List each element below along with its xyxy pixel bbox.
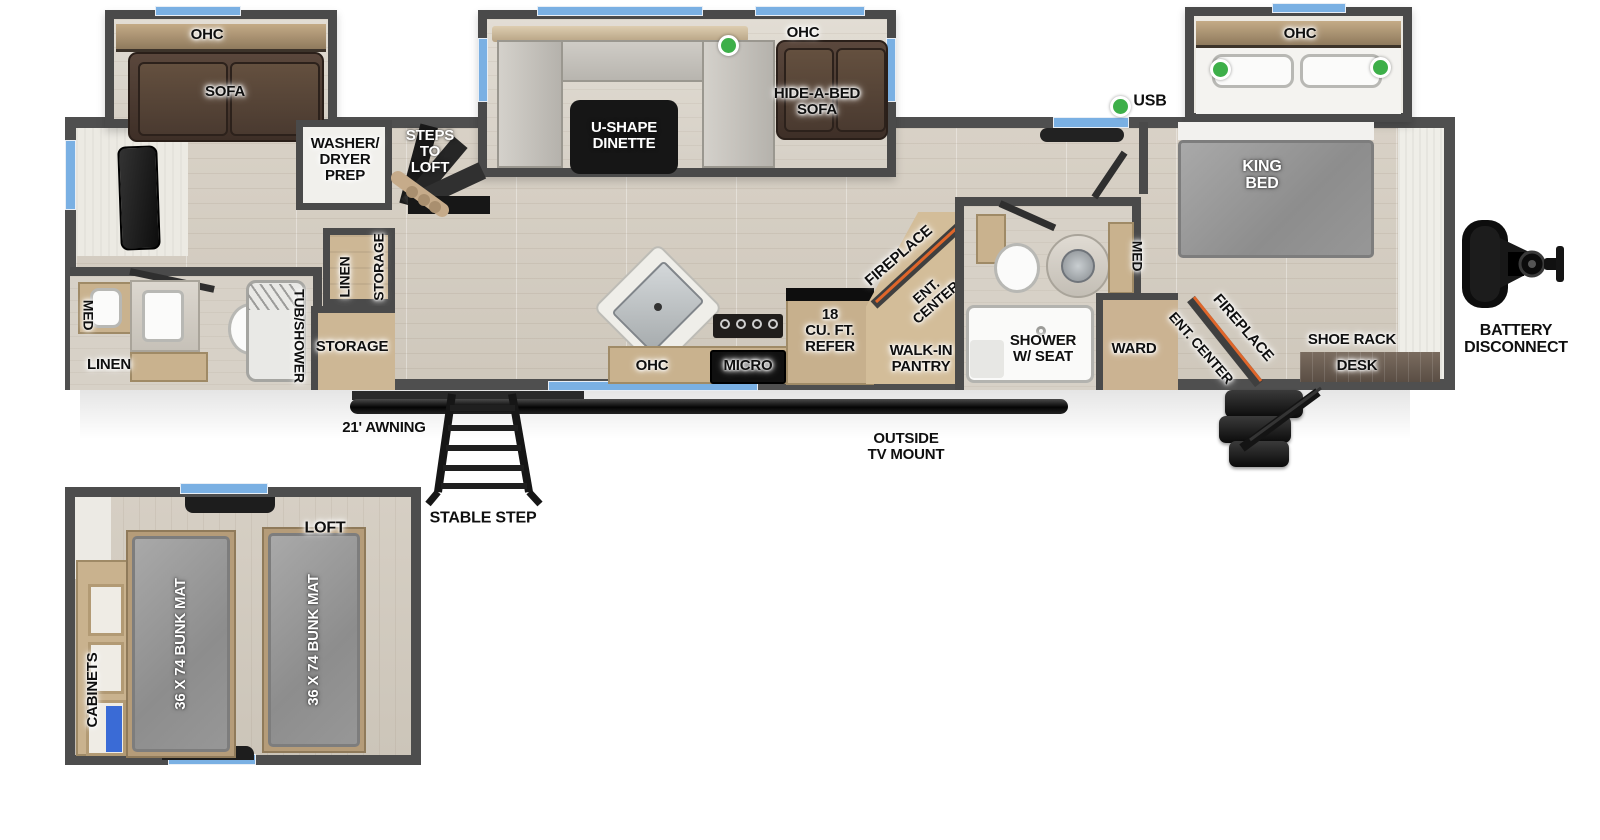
window — [478, 38, 488, 102]
shower-label: SHOWER W/ SEAT — [1010, 333, 1076, 365]
window — [1272, 3, 1346, 13]
refrigerator-top — [786, 288, 874, 301]
burner — [752, 319, 762, 329]
faucet — [654, 303, 662, 311]
usb-dot — [1370, 57, 1391, 78]
usb-label: USB — [1133, 94, 1166, 111]
micro-label: MICRO — [724, 358, 773, 374]
window — [65, 140, 76, 210]
desk-label: DESK — [1337, 358, 1378, 374]
dinette-slide-ohc-label: OHC — [787, 25, 820, 41]
king-bed-sheet — [1178, 122, 1374, 140]
stable-step — [420, 388, 550, 508]
washer-dryer-label: WASHER/ DRYER PREP — [311, 136, 380, 184]
loft-cabinets-label: CABINETS — [85, 652, 101, 727]
vanity-drawers — [130, 352, 208, 382]
king-slide-ohc-label: OHC — [1284, 26, 1317, 42]
mid-med-label: MED — [1130, 241, 1145, 272]
linen-closet-label: LINEN — [338, 256, 353, 297]
round-sink — [1061, 249, 1095, 283]
floorplan-canvas: OHC SOFA U-SHAPE DINETTE OHC HIDE-A-BED … — [0, 0, 1600, 840]
cabinet-door — [88, 584, 124, 636]
rear-med-label: MED — [81, 300, 96, 331]
king-bed-label: KING BED — [1242, 159, 1281, 193]
tv — [117, 145, 161, 250]
tub-shower-label: TUB/SHOWER — [292, 289, 307, 383]
storage-room-label: STORAGE — [316, 339, 389, 355]
usb-dot — [1210, 59, 1231, 80]
window — [755, 6, 865, 16]
hide-a-bed-label: HIDE-A-BED SOFA — [774, 86, 860, 118]
burner — [768, 319, 778, 329]
kitchen-ohc-label: OHC — [636, 358, 669, 374]
refer-label: 18 CU. FT. REFER — [805, 307, 855, 355]
shower-seat — [970, 340, 1004, 378]
window — [537, 6, 703, 16]
pantry-label: WALK-IN PANTRY — [890, 343, 953, 375]
window — [1053, 117, 1129, 128]
rear-linen-label: LINEN — [87, 357, 131, 373]
stable-step-label: STABLE STEP — [430, 511, 537, 528]
steps-to-loft-label: STEPS TO LOFT — [406, 128, 454, 176]
dinette-label: U-SHAPE DINETTE — [591, 120, 657, 152]
tv-mount-label: OUTSIDE TV MOUNT — [868, 431, 945, 463]
rear-slide-ohc-label: OHC — [191, 27, 224, 43]
entry-step-rail — [1200, 380, 1340, 470]
burner — [736, 319, 746, 329]
bedroom-tv-console — [1040, 128, 1124, 142]
window — [155, 6, 241, 16]
bunk-left-label: 36 X 74 BUNK MAT — [173, 578, 189, 710]
hall-wall — [1139, 122, 1148, 194]
burner — [720, 319, 730, 329]
shoe-rack-label: SHOE RACK — [1308, 332, 1396, 348]
loft-label: LOFT — [305, 521, 346, 538]
ward-label: WARD — [1111, 341, 1156, 357]
front-cap — [1398, 128, 1444, 379]
loft-ledge — [185, 497, 275, 513]
bunk-right-label: 36 X 74 BUNK MAT — [306, 574, 322, 706]
sofa-label: SOFA — [205, 84, 245, 100]
cabinet-door-blue — [106, 706, 122, 752]
toilet — [994, 243, 1040, 293]
window — [180, 483, 268, 494]
sink — [142, 290, 184, 342]
usb-dot — [718, 35, 739, 56]
battery-disconnect-label: BATTERY DISCONNECT — [1464, 323, 1568, 357]
usb-dot — [1110, 96, 1131, 117]
dinette-bench — [702, 40, 775, 168]
awning-label: 21' AWNING — [342, 420, 426, 436]
storage-closet-label: STORAGE — [372, 233, 387, 301]
trailer-hitch — [1440, 200, 1600, 330]
